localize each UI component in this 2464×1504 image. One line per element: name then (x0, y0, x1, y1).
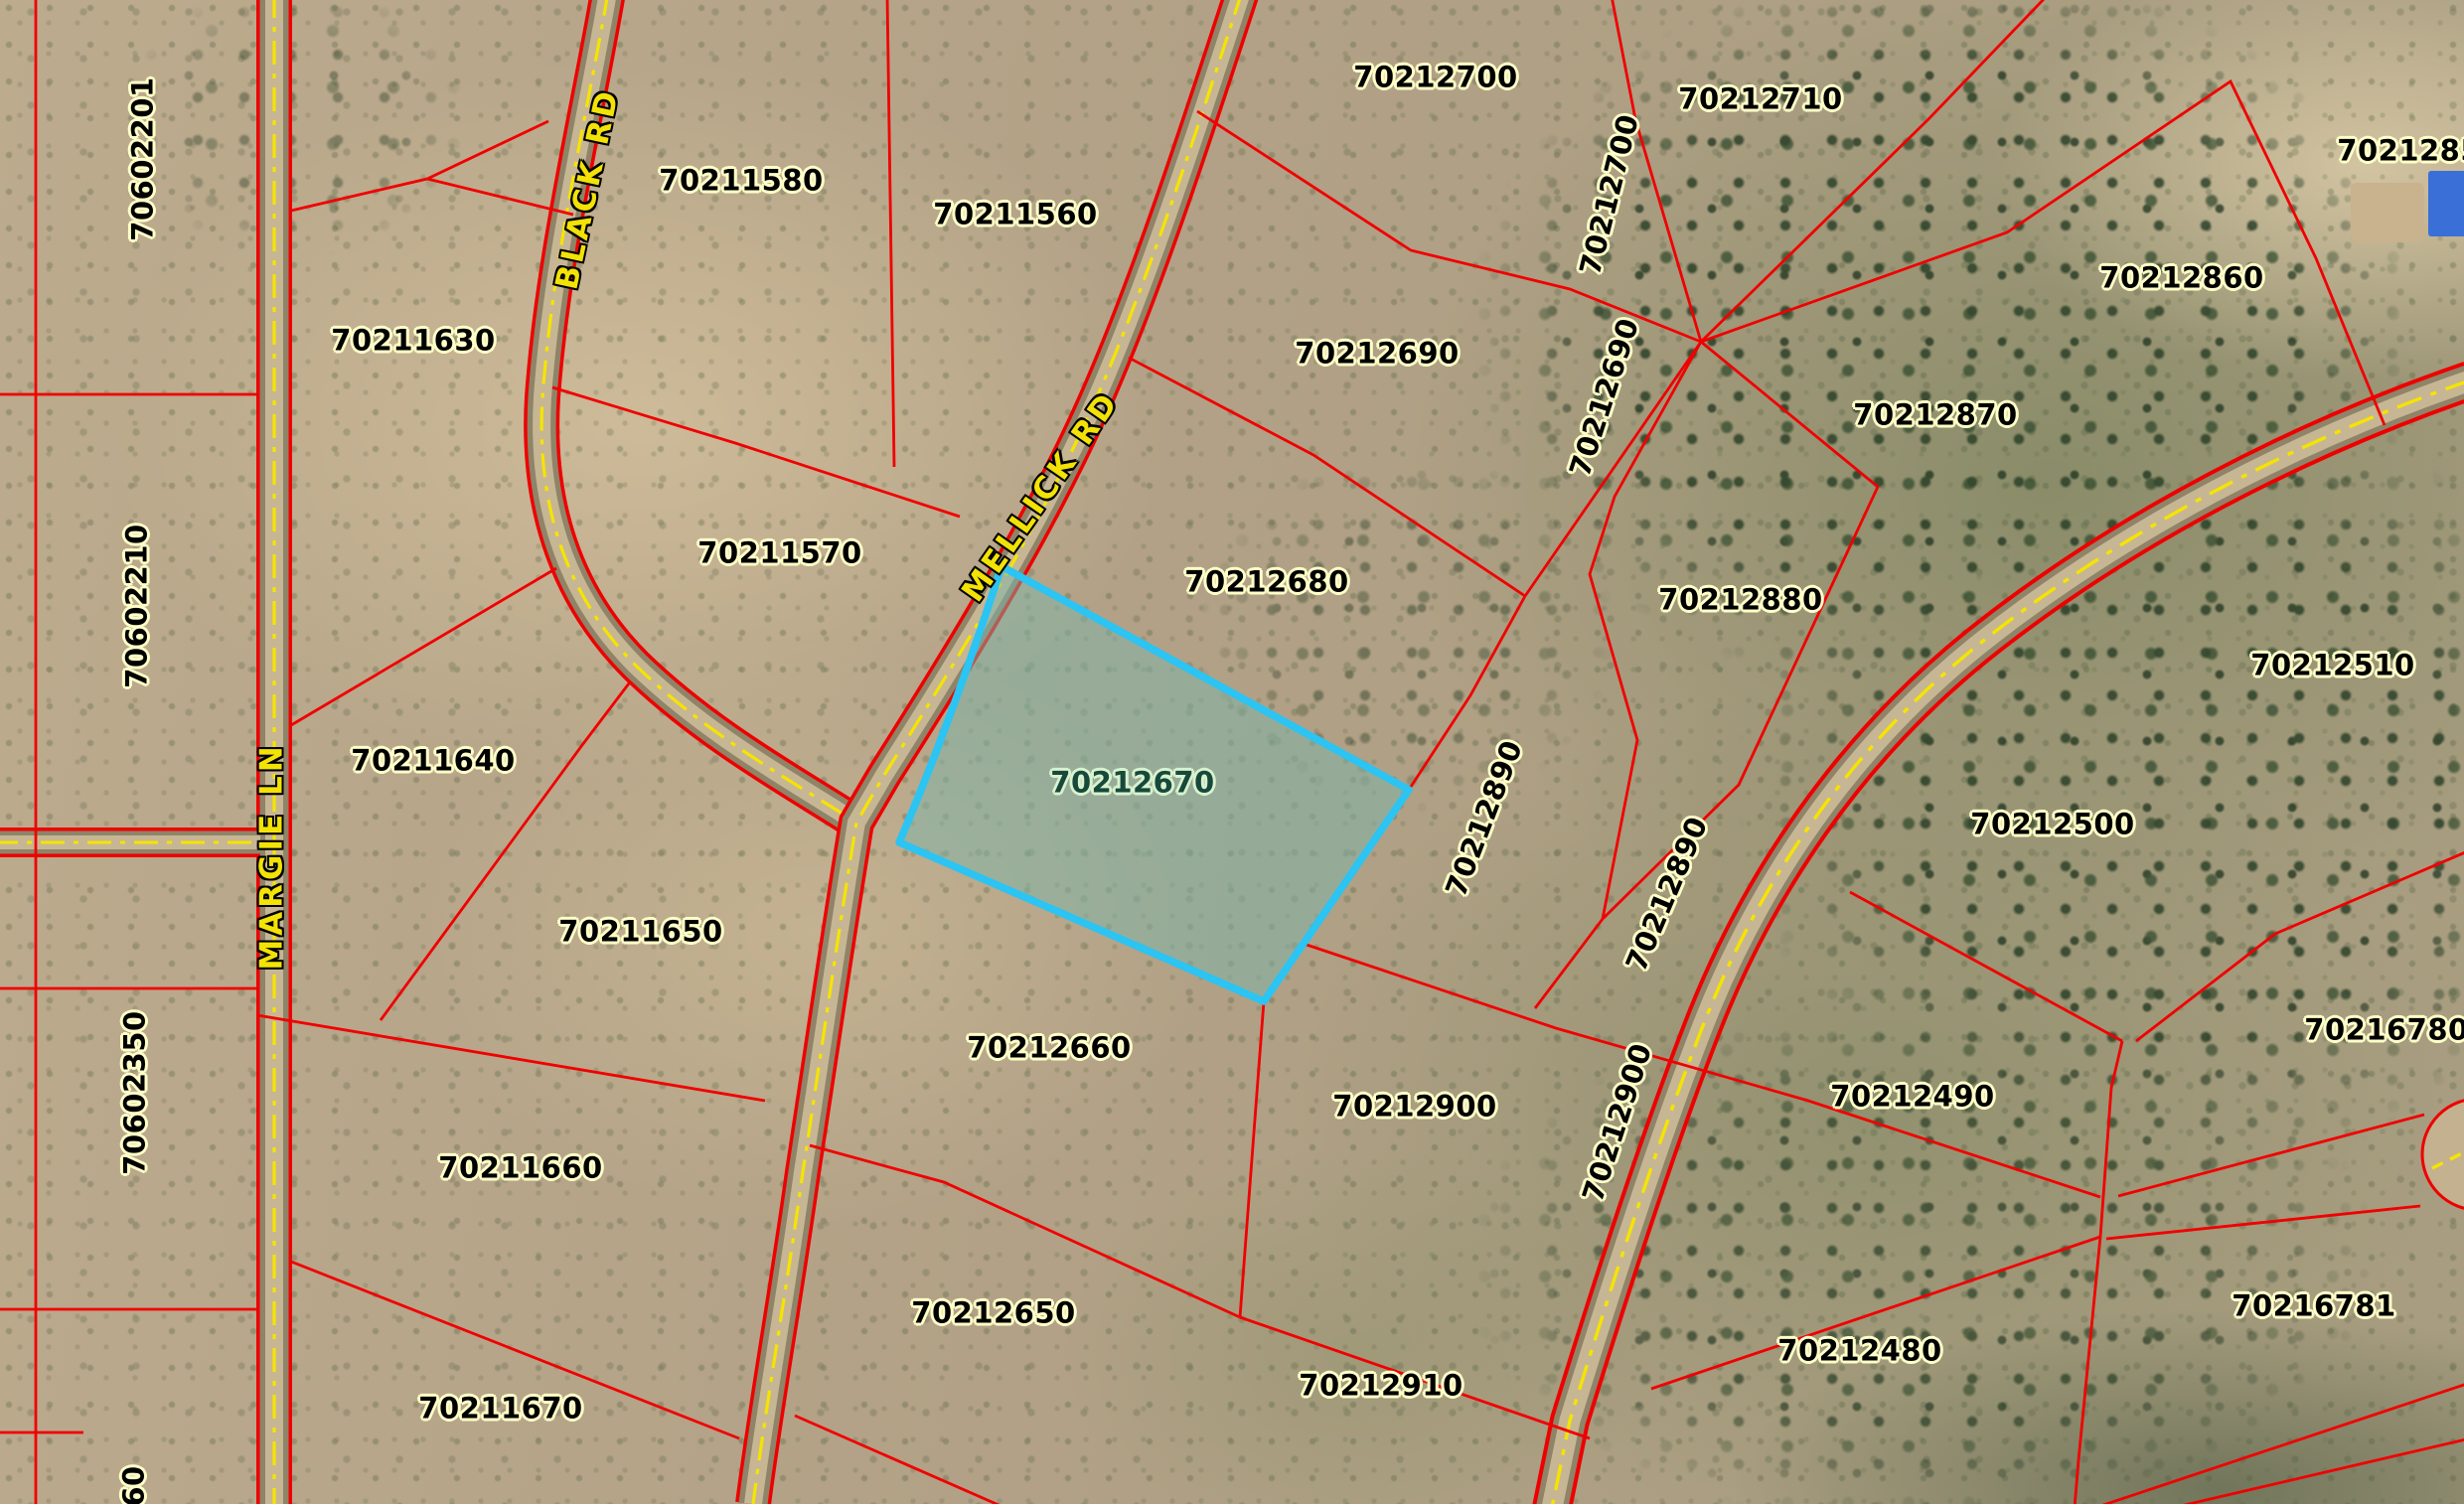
parcel-label[interactable]: 70212900 (1332, 1093, 1496, 1122)
parcel-label[interactable]: 70211560 (933, 201, 1097, 229)
parcel-label[interactable]: 70211670 (418, 1395, 582, 1424)
parcel-label[interactable]: 70212880 (1658, 586, 1822, 615)
parcel-label[interactable]: 70211570 (697, 539, 861, 568)
parcel-label[interactable]: 70216780 (2304, 1016, 2464, 1045)
parcel-label[interactable]: 70212670 (1050, 769, 1214, 798)
parcel-label[interactable]: 70212510 (2250, 652, 2414, 680)
parcel-label[interactable]: 60 (120, 1465, 149, 1504)
cul-de-sac (2422, 1099, 2464, 1210)
parcel-label[interactable]: 70212910 (1299, 1372, 1463, 1401)
parcel-label[interactable]: 70602201 (129, 76, 158, 240)
parcel-label[interactable]: 70602350 (121, 1010, 150, 1174)
parcel-label[interactable]: 70211580 (659, 167, 823, 196)
parcel-label[interactable]: 70211630 (331, 327, 495, 356)
parcel-label[interactable]: 70212480 (1777, 1337, 1941, 1366)
parcel-label[interactable]: 70212870 (1853, 401, 2017, 430)
parcel-label[interactable]: 70212850 (2337, 137, 2464, 166)
parcel-label[interactable]: 70211650 (558, 918, 722, 947)
parcel-label[interactable]: 70212500 (1970, 811, 2134, 839)
parcel-label[interactable]: 70602210 (123, 524, 152, 687)
parcel-label[interactable]: 70212710 (1678, 85, 1842, 114)
parcel-label[interactable]: 70211660 (438, 1154, 602, 1183)
parcel-label[interactable]: 70216781 (2232, 1292, 2395, 1321)
parcel-label[interactable]: 70212660 (967, 1034, 1131, 1063)
road-name-label: MARGIE LN (257, 742, 288, 970)
parcel-label[interactable]: 70212490 (1830, 1083, 1994, 1112)
parcel-label[interactable]: 70212860 (2099, 264, 2263, 293)
parcel-label[interactable]: 70212650 (911, 1299, 1075, 1328)
parcel-label[interactable]: 70211640 (351, 747, 515, 776)
parcel-label[interactable]: 70212700 (1353, 64, 1517, 92)
parcel-label[interactable]: 70212680 (1184, 568, 1348, 597)
parcel-map-canvas[interactable]: 7060220170211580702115607021270070212710… (0, 0, 2464, 1504)
east-arc-road (1552, 380, 2464, 1504)
parcel-label[interactable]: 70212690 (1295, 340, 1459, 369)
